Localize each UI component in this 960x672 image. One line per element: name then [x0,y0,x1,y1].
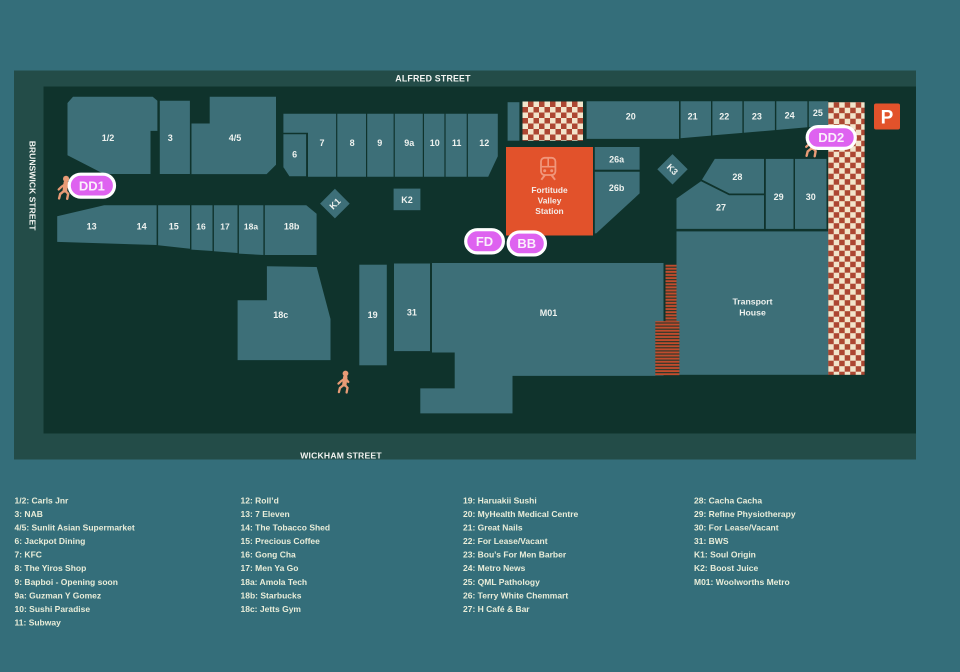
svg-text:9a: 9a [404,138,415,148]
svg-text:9a: Guzman Y Gomez: 9a: Guzman Y Gomez [15,590,102,600]
svg-text:30: 30 [806,192,816,202]
svg-text:Fortitude: Fortitude [531,185,568,195]
svg-text:17: 17 [220,221,230,231]
svg-text:1/2: Carls Jnr: 1/2: Carls Jnr [15,495,70,505]
svg-text:15: Precious Coffee: 15: Precious Coffee [241,536,321,546]
svg-text:Station: Station [535,206,563,216]
svg-text:ALFRED STREET: ALFRED STREET [395,74,471,84]
svg-text:31: BWS: 31: BWS [694,536,729,546]
svg-text:26: Terry White Chemmart: 26: Terry White Chemmart [463,590,568,600]
svg-text:27: 27 [716,203,726,213]
svg-text:26a: 26a [609,154,625,164]
svg-text:15: 15 [169,221,179,231]
svg-text:24: 24 [785,110,795,120]
svg-text:20: 20 [626,112,636,122]
svg-text:18c: 18c [273,310,288,320]
svg-text:12: Roll’d: 12: Roll’d [241,495,279,505]
svg-text:P: P [881,108,894,129]
svg-text:26b: 26b [609,183,625,193]
svg-text:31: 31 [407,307,417,317]
svg-text:BRUNSWICK STREET: BRUNSWICK STREET [27,141,37,232]
svg-text:4/5: Sunlit Asian Supermarket: 4/5: Sunlit Asian Supermarket [15,523,135,533]
svg-text:27: H Café & Bar: 27: H Café & Bar [463,604,530,614]
svg-text:Valley: Valley [538,195,562,205]
svg-text:25: QML Pathology: 25: QML Pathology [463,577,540,587]
svg-text:19: 19 [368,310,378,320]
svg-text:8: The Yiros Shop: 8: The Yiros Shop [15,563,87,573]
svg-text:25: 25 [813,108,823,118]
svg-text:13: 7 Eleven: 13: 7 Eleven [241,509,290,519]
svg-text:18a: 18a [244,221,258,231]
svg-text:29: 29 [774,192,784,202]
svg-text:16: Gong Cha: 16: Gong Cha [241,550,297,560]
svg-text:K1: Soul Origin: K1: Soul Origin [694,550,756,560]
svg-text:18b: Starbucks: 18b: Starbucks [241,590,302,600]
svg-text:13: 13 [87,221,97,231]
svg-text:30: For Lease/Vacant: 30: For Lease/Vacant [694,523,779,533]
svg-text:28: Cacha Cacha: 28: Cacha Cacha [694,495,762,505]
svg-text:7: KFC: 7: KFC [15,550,42,560]
svg-text:WICKHAM STREET: WICKHAM STREET [300,450,382,460]
svg-text:20: MyHealth Medical Centre: 20: MyHealth Medical Centre [463,509,579,519]
svg-text:FD: FD [476,234,493,249]
svg-text:6: 6 [292,149,297,159]
svg-text:3: NAB: 3: NAB [15,509,43,519]
svg-text:K2: K2 [401,195,413,205]
svg-text:8: 8 [350,138,355,148]
svg-text:19: Haruakii Sushi: 19: Haruakii Sushi [463,495,537,505]
svg-text:14: The Tobacco Shed: 14: The Tobacco Shed [241,523,331,533]
svg-text:24: Metro News: 24: Metro News [463,563,526,573]
svg-text:21: 21 [688,112,698,122]
svg-text:17: Men Ya Go: 17: Men Ya Go [241,563,299,573]
svg-text:6: Jackpot Dining: 6: Jackpot Dining [15,536,86,546]
svg-text:10: 10 [430,138,440,148]
svg-text:18b: 18b [284,221,300,231]
svg-text:M01: Woolworths Metro: M01: Woolworths Metro [694,577,790,587]
svg-text:16: 16 [196,221,206,231]
svg-text:1/2: 1/2 [102,133,115,143]
svg-text:23: 23 [752,111,762,121]
svg-text:28: 28 [732,172,742,182]
svg-text:9: 9 [377,138,382,148]
svg-text:18c: Jetts Gym: 18c: Jetts Gym [241,604,302,614]
svg-text:29: Refine Physiotherapy: 29: Refine Physiotherapy [694,509,796,519]
svg-text:9: Bapboi - Opening soon: 9: Bapboi - Opening soon [15,577,118,587]
svg-text:K2: Boost Juice: K2: Boost Juice [694,563,759,573]
svg-text:BB: BB [517,236,536,251]
svg-text:22: For Lease/Vacant: 22: For Lease/Vacant [463,536,548,546]
svg-text:M01: M01 [540,308,558,318]
svg-text:3: 3 [168,133,173,143]
svg-text:4/5: 4/5 [229,133,242,143]
svg-text:14: 14 [137,221,147,231]
svg-text:7: 7 [319,138,324,148]
svg-text:11: Subway: 11: Subway [15,618,62,628]
svg-text:DD2: DD2 [818,130,844,145]
svg-text:10: Sushi Paradise: 10: Sushi Paradise [15,604,91,614]
svg-text:DD1: DD1 [79,178,105,193]
svg-text:23: Bou’s For Men Barber: 23: Bou’s For Men Barber [463,550,567,560]
svg-text:21: Great Nails: 21: Great Nails [463,523,523,533]
svg-text:House: House [739,308,766,318]
svg-text:11: 11 [452,138,462,148]
svg-text:22: 22 [719,112,729,122]
svg-text:12: 12 [479,138,489,148]
svg-text:18a: Amola Tech: 18a: Amola Tech [241,577,308,587]
svg-text:Transport: Transport [732,297,772,307]
